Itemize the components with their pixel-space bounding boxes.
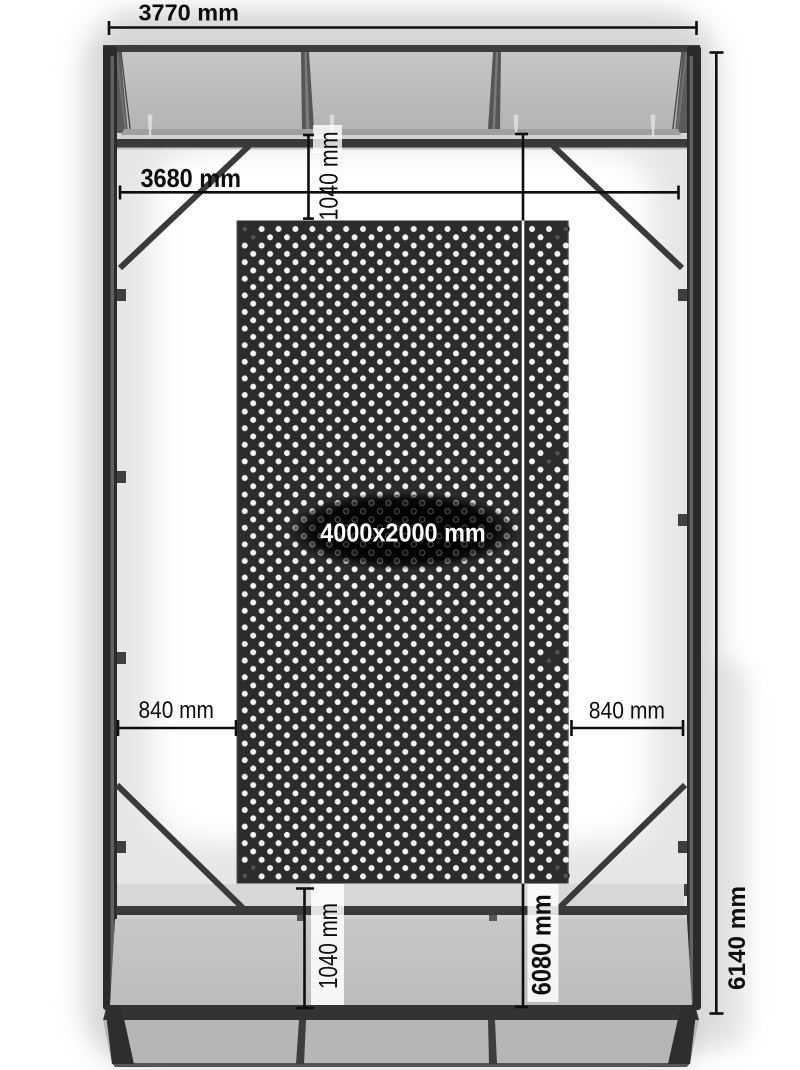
svg-text:3770 mm: 3770 mm [139, 0, 240, 25]
svg-text:6140 mm: 6140 mm [724, 886, 751, 990]
svg-text:840 mm: 840 mm [589, 697, 665, 724]
svg-text:1040 mm: 1040 mm [313, 903, 343, 989]
svg-text:4000x2000 mm: 4000x2000 mm [320, 518, 486, 548]
svg-text:6080 mm: 6080 mm [527, 894, 557, 995]
svg-text:840 mm: 840 mm [139, 697, 214, 724]
svg-text:1040 mm: 1040 mm [314, 132, 344, 221]
svg-text:3680 mm: 3680 mm [141, 163, 242, 193]
